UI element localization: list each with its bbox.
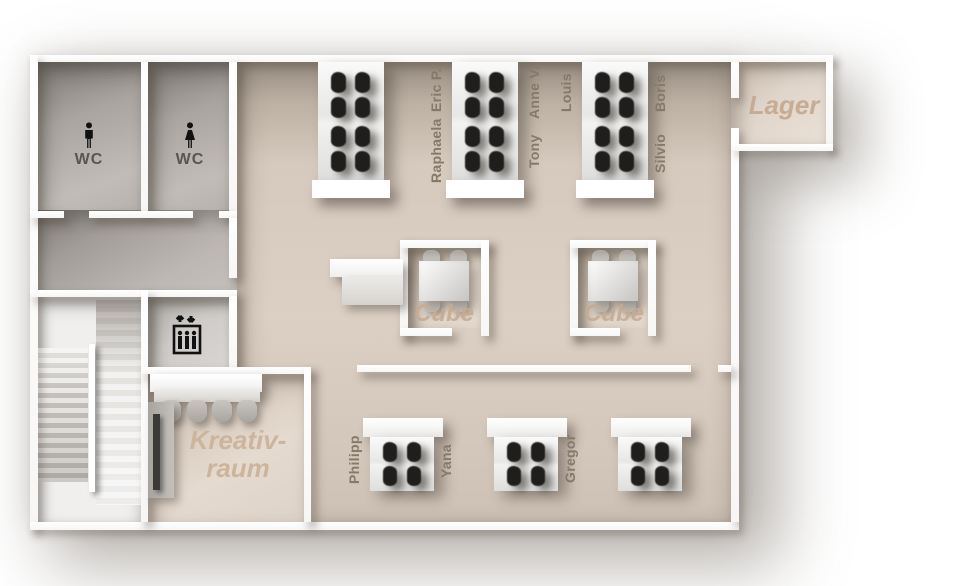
chair[interactable] bbox=[355, 72, 370, 118]
whiteboard bbox=[153, 414, 160, 490]
chair[interactable] bbox=[331, 72, 346, 118]
desk-label: Tony bbox=[524, 122, 544, 180]
stool[interactable] bbox=[212, 400, 232, 422]
kitchenette-counter bbox=[330, 259, 403, 277]
chair[interactable] bbox=[383, 442, 397, 486]
desk-label: Yana bbox=[436, 436, 456, 486]
room-label-kreativraum: Kreativ- raum bbox=[168, 426, 308, 482]
wall bbox=[30, 211, 64, 218]
desk-base bbox=[363, 418, 443, 437]
kitchenette-counter bbox=[342, 277, 403, 305]
stair-railing bbox=[89, 344, 95, 492]
wall bbox=[718, 365, 731, 372]
desk-base bbox=[611, 418, 691, 437]
wall bbox=[731, 62, 739, 98]
chair[interactable] bbox=[407, 442, 421, 486]
room-label-wc-right: WC bbox=[165, 151, 215, 169]
chair[interactable] bbox=[355, 126, 370, 172]
desk-pod[interactable] bbox=[494, 437, 558, 491]
room-label-lager: Lager bbox=[740, 90, 828, 121]
stool[interactable] bbox=[237, 400, 257, 422]
desk-label: Eric P. bbox=[426, 62, 446, 118]
staircase-right-flight bbox=[96, 300, 141, 505]
chair[interactable] bbox=[465, 72, 480, 118]
chair[interactable] bbox=[595, 72, 610, 118]
desk-pod[interactable] bbox=[318, 62, 384, 180]
wall bbox=[570, 240, 656, 248]
floorplan-canvas: Eric P. Raphaela Anne V. Tony Louis Bori… bbox=[0, 0, 958, 586]
wall bbox=[400, 240, 489, 248]
female-icon bbox=[179, 122, 201, 150]
kreativraum-label-line2: raum bbox=[168, 454, 308, 482]
desk-base bbox=[576, 180, 654, 198]
desk-pod[interactable] bbox=[582, 62, 648, 180]
wall bbox=[400, 328, 452, 336]
desk-label: Louis bbox=[556, 64, 576, 122]
room-label-cube-left: Cube bbox=[404, 300, 484, 328]
chair[interactable] bbox=[655, 442, 669, 486]
wall bbox=[229, 296, 237, 374]
wall bbox=[731, 144, 833, 151]
wall bbox=[141, 367, 311, 374]
desk-pod[interactable] bbox=[618, 437, 682, 491]
desk-label: Philipp bbox=[344, 428, 364, 492]
room-label-wc-left: WC bbox=[64, 151, 114, 169]
desk-base bbox=[446, 180, 524, 198]
wall bbox=[731, 128, 739, 522]
meeting-table bbox=[588, 261, 638, 301]
meeting-table bbox=[419, 261, 469, 301]
wall bbox=[89, 211, 193, 218]
male-icon bbox=[78, 122, 100, 150]
desk-label: Boris bbox=[650, 64, 670, 122]
wall bbox=[229, 62, 237, 211]
desk-pod[interactable] bbox=[452, 62, 518, 180]
chair[interactable] bbox=[489, 126, 504, 172]
desk-pod[interactable] bbox=[370, 437, 434, 491]
chair[interactable] bbox=[465, 126, 480, 172]
chair[interactable] bbox=[595, 126, 610, 172]
desk-label: Raphaela bbox=[426, 116, 446, 186]
kreativraum-label-line1: Kreativ- bbox=[168, 426, 308, 454]
desk-label: Silvio bbox=[650, 122, 670, 184]
staircase-left-flight bbox=[38, 348, 88, 482]
stool[interactable] bbox=[187, 400, 207, 422]
wall bbox=[30, 522, 739, 530]
chair[interactable] bbox=[507, 442, 521, 486]
wall bbox=[141, 290, 148, 522]
wall bbox=[219, 211, 237, 218]
desk-base bbox=[312, 180, 390, 198]
room-label-cube-right: Cube bbox=[574, 300, 654, 328]
wall bbox=[229, 218, 237, 278]
chair[interactable] bbox=[531, 442, 545, 486]
desk-label: Gregor bbox=[560, 430, 580, 488]
chair[interactable] bbox=[619, 72, 634, 118]
corridor-floor bbox=[30, 210, 237, 297]
wall bbox=[30, 55, 833, 62]
elevator-icon bbox=[170, 312, 208, 358]
wall bbox=[570, 328, 620, 336]
chair[interactable] bbox=[489, 72, 504, 118]
desk-base bbox=[487, 418, 567, 437]
wall bbox=[30, 290, 237, 297]
wall bbox=[357, 365, 691, 372]
desk-label: Anne V. bbox=[524, 62, 544, 124]
chair[interactable] bbox=[631, 442, 645, 486]
wall bbox=[141, 62, 148, 211]
chair[interactable] bbox=[331, 126, 346, 172]
chair[interactable] bbox=[619, 126, 634, 172]
